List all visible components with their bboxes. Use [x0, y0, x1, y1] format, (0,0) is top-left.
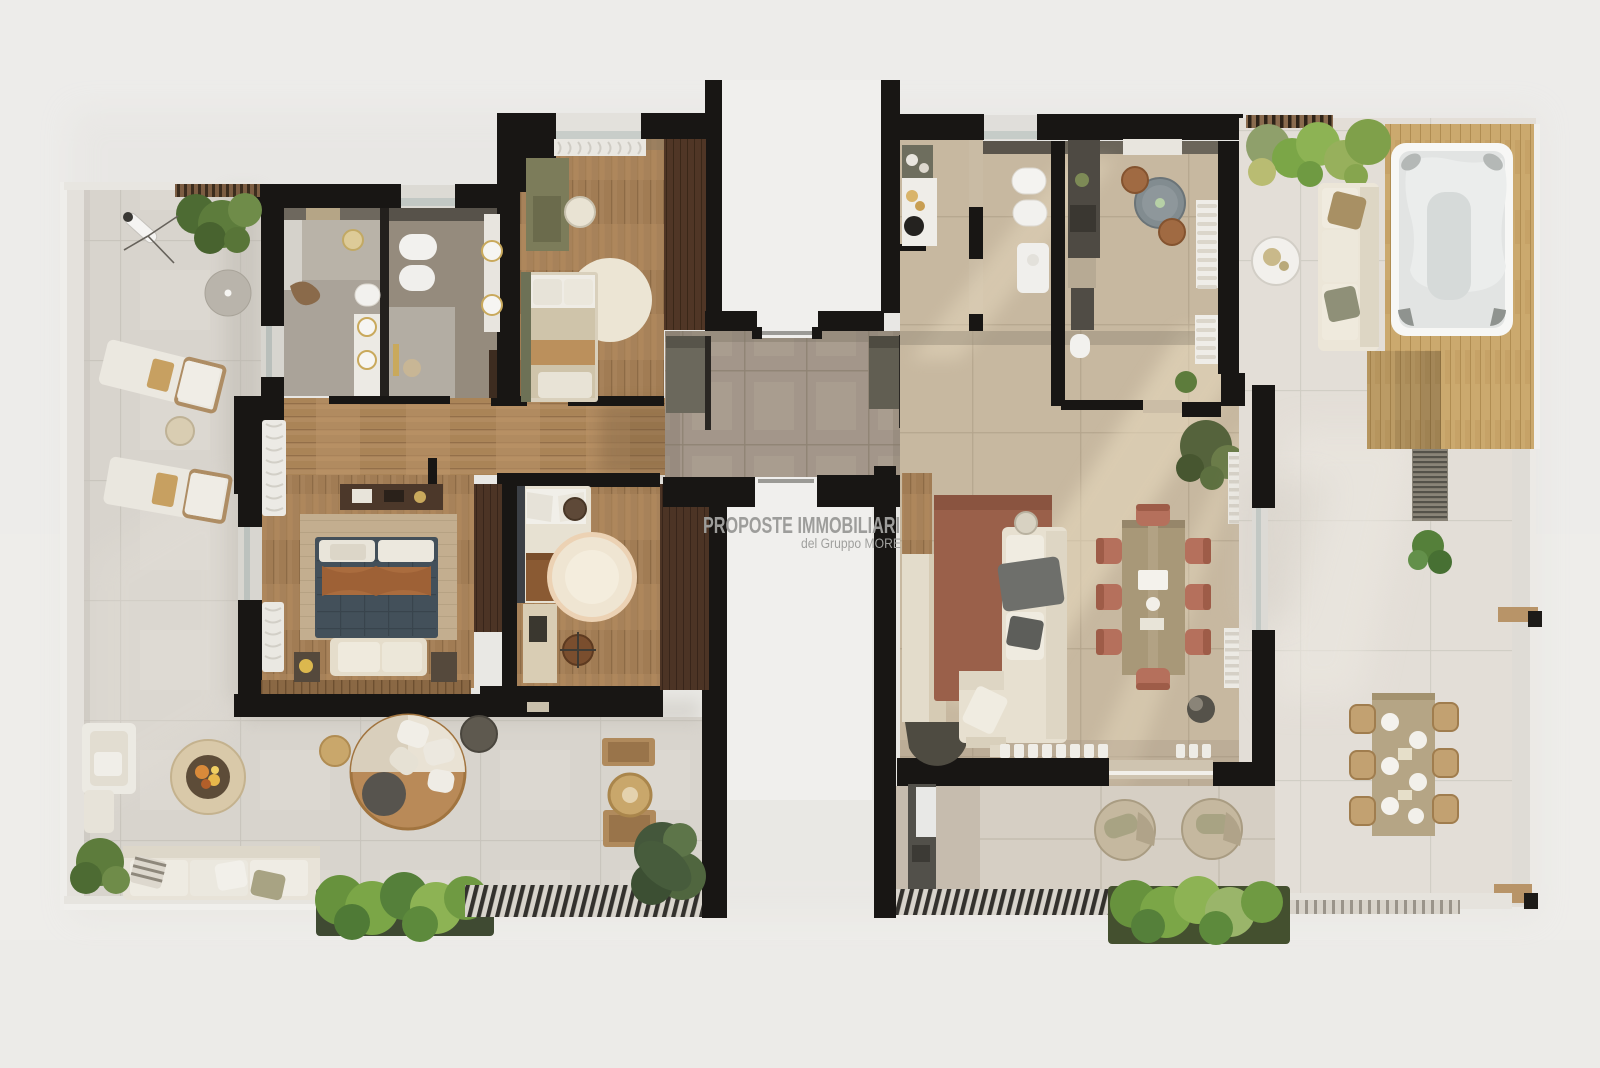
svg-text:del Gruppo MORE: del Gruppo MORE [801, 536, 901, 551]
svg-text:PROPOSTE IMMOBILIARI: PROPOSTE IMMOBILIARI [703, 512, 900, 538]
